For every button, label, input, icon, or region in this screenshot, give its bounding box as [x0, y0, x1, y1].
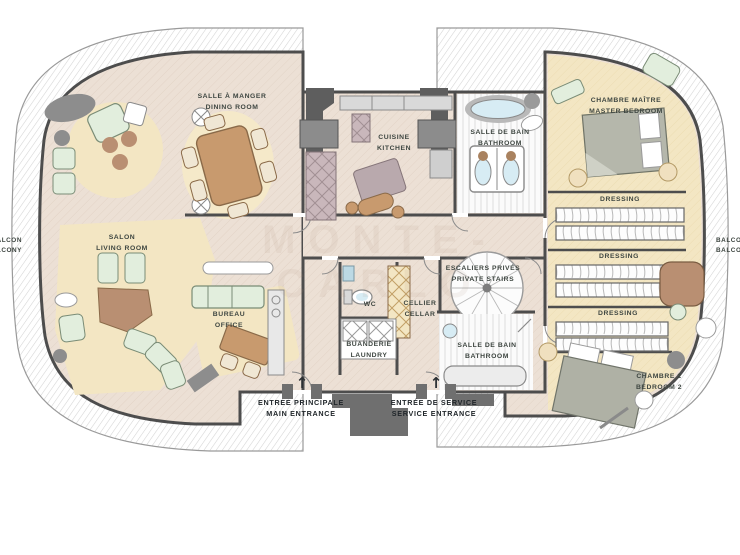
pouf [667, 351, 685, 369]
pouf [112, 154, 128, 170]
armchair [98, 253, 118, 283]
console-table [203, 262, 273, 274]
kitchenette-column [268, 290, 284, 375]
label-dressing-3: DRESSING [598, 309, 638, 320]
label-main-entrance: ENTREE PRINCIPALE MAIN ENTRANCE [258, 397, 344, 419]
bathtub [444, 366, 526, 386]
pouf [102, 137, 118, 153]
balcony-table [696, 318, 716, 338]
stool [524, 93, 540, 109]
service-entrance-arrow-icon: ↑ [430, 376, 443, 391]
side-table [659, 163, 677, 181]
floor-plan-drawing [0, 0, 740, 555]
washer [343, 321, 367, 341]
side-table [539, 343, 557, 361]
label-cellar: CELLIER CELLAR [404, 299, 437, 320]
side-table [569, 169, 587, 187]
spiral-staircase [451, 252, 523, 324]
armchair [125, 253, 145, 283]
balcony-table [635, 391, 653, 409]
main-entrance-arrow-icon: ↑ [296, 376, 309, 391]
label-service-entrance: ENTRÉE DE SERVICE SERVICE ENTRANCE [391, 397, 477, 419]
chair [53, 148, 75, 169]
sofa [192, 286, 264, 308]
label-laundry: BUANDERIE LAUNDRY [346, 340, 391, 361]
label-wc: WC [364, 300, 376, 311]
label-living-room: SALON LIVING ROOM [96, 233, 148, 254]
label-private-stairs: ESCALIERS PRIVÉS PRIVATE STAIRS [446, 264, 521, 285]
label-bedroom-2: CHAMBRE 2 BEDROOM 2 [636, 372, 682, 393]
pouf [54, 130, 70, 146]
label-dining-room: SALLE À MANGER DINING ROOM [198, 92, 267, 113]
armchair [58, 313, 85, 342]
pouf [53, 349, 67, 363]
sink [443, 324, 457, 338]
label-dressing-2: DRESSING [599, 252, 639, 263]
side-table [55, 293, 77, 307]
pouf [121, 131, 137, 147]
kitchen-stool [392, 206, 404, 218]
fridge [430, 150, 452, 178]
bathroom-top [457, 93, 545, 213]
label-kitchen: CUISINE KITCHEN [377, 133, 411, 154]
kitchen-stool [346, 202, 358, 214]
label-bathroom-bottom: SALLE DE BAIN BATHROOM [457, 341, 516, 362]
label-bathroom-top: SALLE DE BAIN BATHROOM [470, 128, 529, 149]
label-office: BUREAU OFFICE [213, 310, 245, 331]
label-balcony-right: BALCON BALCONY [716, 236, 740, 256]
label-dressing-1: DRESSING [600, 195, 640, 206]
dryer [369, 321, 393, 341]
floor-plan-page: MONTE-CARLO SALLE À MANGER DINING ROOM C… [0, 0, 740, 555]
label-master-bedroom: CHAMBRE MAÎTRE MASTER BEDROOM [589, 96, 663, 117]
label-balcony-left: BALCON BALCONY [0, 236, 22, 256]
chair [53, 173, 75, 194]
